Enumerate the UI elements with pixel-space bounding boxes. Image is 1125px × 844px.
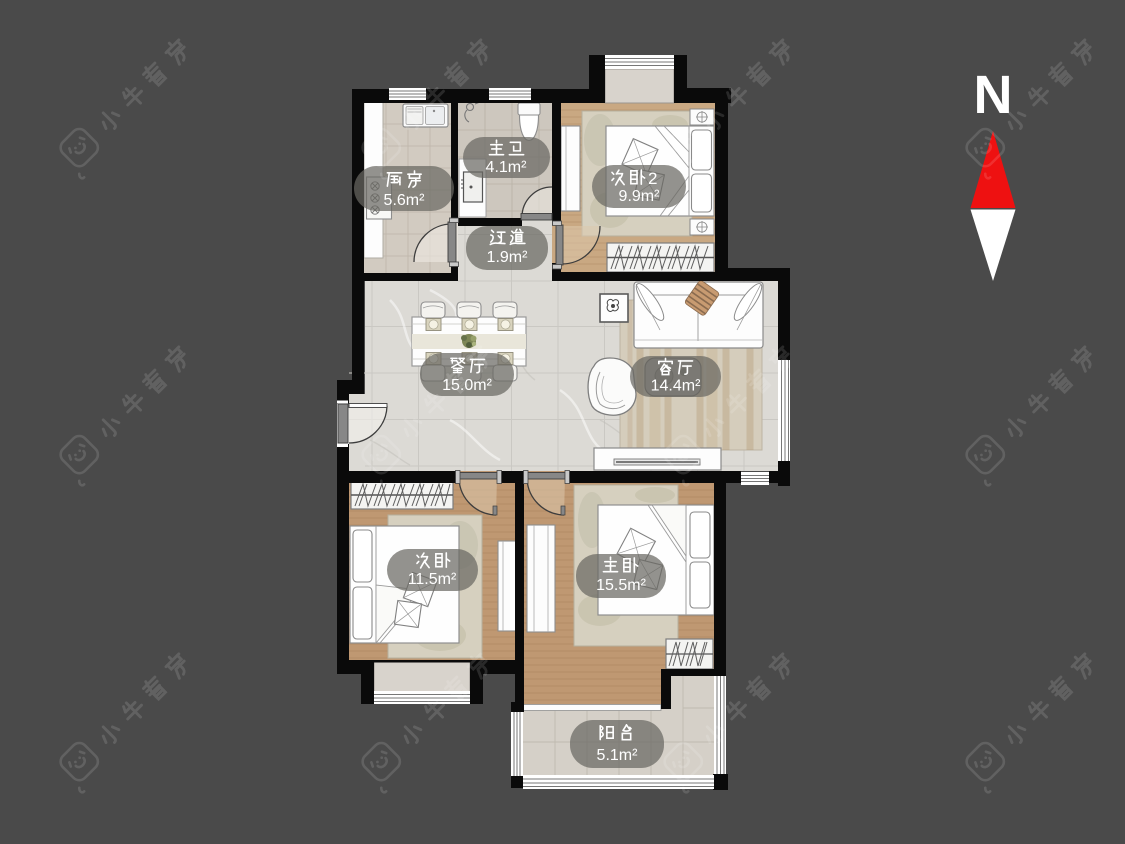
svg-text:5.1m²: 5.1m² xyxy=(597,747,639,764)
svg-text:5.6m²: 5.6m² xyxy=(384,192,426,209)
svg-text:2: 2 xyxy=(648,169,657,188)
svg-text:9.9m²: 9.9m² xyxy=(619,188,661,205)
svg-text:4.1m²: 4.1m² xyxy=(486,159,528,176)
svg-text:11.5m²: 11.5m² xyxy=(408,571,457,588)
svg-text:15.5m²: 15.5m² xyxy=(596,577,646,594)
svg-text:N: N xyxy=(974,65,1013,125)
svg-text:1.9m²: 1.9m² xyxy=(487,249,529,266)
svg-text:14.4m²: 14.4m² xyxy=(651,378,701,395)
